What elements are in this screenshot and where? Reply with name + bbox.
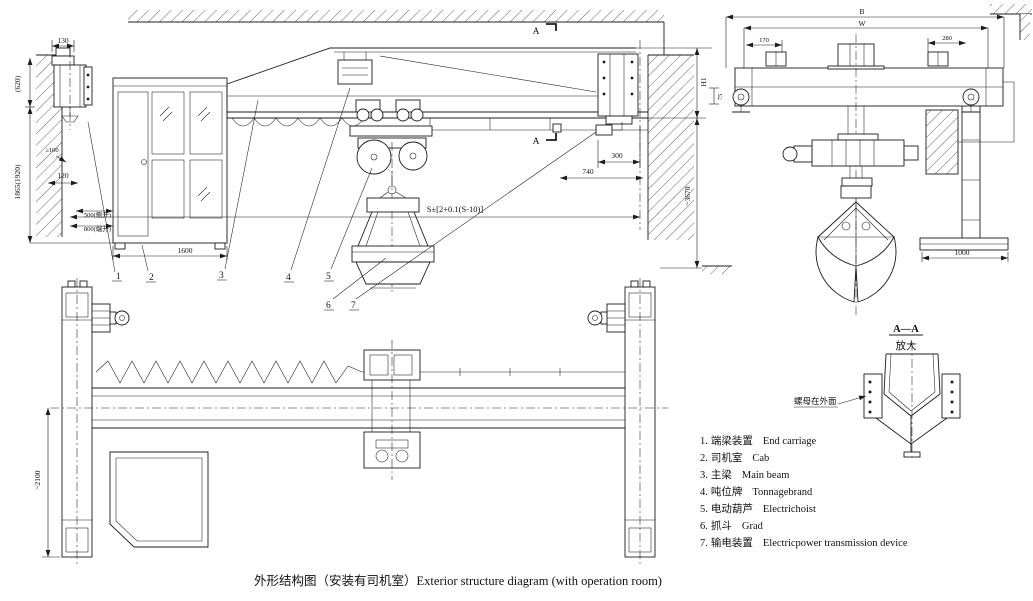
aa-detail-subtitle: 放大 [896,339,917,352]
legend: 1.端梁装置End carriage 2.司机室Cab 3.主梁Main bea… [700,434,908,549]
grab-elevation [352,192,434,288]
elevation-view: A A [13,10,724,311]
plan-travel-motor-left [92,304,129,332]
side-ceiling-corner-hatch [990,4,1032,40]
dim-2100: ~2100 [33,470,42,489]
legend-item-4: 4.吨位牌Tonnagebrand [700,485,813,498]
dim-1865: 1865(1920) [13,164,22,199]
legend-num: 5. [700,504,708,515]
legend-zh: 端梁装置 [711,434,753,447]
legend-en: Electricpower transmission device [763,538,908,549]
legend-num: 6. [700,521,708,532]
legend-en: Main beam [742,470,790,481]
plan-girder [50,388,668,428]
dim-75: 75 [717,94,724,101]
dim-280: 280 [942,35,952,42]
dim-1000: 1000 [955,248,970,257]
plan-festoon-wire [96,361,625,383]
legend-zh: 吨位牌 [711,485,743,498]
legend-item-1: 1.端梁装置End carriage [700,434,817,447]
dim-b: B [859,7,864,16]
legend-item-5: 5.电动葫芦Electrichoist [700,502,816,515]
dim-120: 120 [57,171,69,180]
dim-500-side-open: 500(侧开) [84,210,111,219]
aa-detail-note: 螺母在外面 [794,396,837,406]
legend-item-7: 7.输电装置Electricpower transmission device [700,536,908,549]
callout-5: 5 [326,272,331,282]
callout-2: 2 [149,273,154,283]
dim-min100: ≥100 [45,147,58,154]
crane-exterior-structure-drawing: A A [0,0,1033,601]
legend-en: Electrichoist [763,504,816,515]
side-cabinet-column: 1000 [920,82,1014,262]
legend-num: 1. [700,436,708,447]
legend-zh: 输电装置 [711,536,753,549]
legend-num: 2. [700,453,708,464]
legend-item-6: 6.抓斗Grad [700,519,764,532]
dim-w: W [858,19,866,28]
plan-cab-outline [110,452,208,547]
plan-left-end-carriage [62,278,92,564]
side-hoist [783,106,918,186]
dim-1600: 1600 [178,246,193,255]
aa-detail-title: A—A [893,324,919,335]
right-wall-hatch [648,55,694,240]
dim-740: 740 [582,167,594,176]
section-marker-a-top: A [533,24,556,37]
dim-130: 130 [57,36,69,45]
callout-4: 4 [286,273,291,283]
legend-item-2: 2.司机室Cab [700,451,769,464]
legend-zh: 司机室 [711,451,743,464]
festoon-cable [232,118,648,130]
plan-hoist-trolley [364,340,420,480]
main-girder [227,40,648,230]
tonnage-plate [338,52,372,84]
legend-en: Cab [752,453,769,464]
legend-zh: 主梁 [711,468,732,481]
callout-7: 7 [351,301,356,311]
legend-num: 7. [700,538,708,549]
dim-620: (620) [13,75,22,92]
side-view: B W 170 280 [702,4,1032,316]
legend-zh: 抓斗 [711,519,732,532]
section-a-label: A [533,137,540,147]
plan-dimension-2100: ~2100 [33,408,60,557]
dim-span-s: S±[2+0.1(S-10)] [427,204,484,214]
plan-right-end-carriage [625,278,655,564]
legend-item-3: 3.主梁Main beam [700,468,789,481]
legend-zh: 电动葫芦 [711,502,753,515]
section-a-label: A [533,27,540,37]
drawing-canvas: A A [0,0,1033,601]
plan-travel-motor-right [588,304,625,332]
callout-6: 6 [326,301,331,311]
aa-detail-view: A—A 放大 螺母在外面 [794,324,960,458]
callout-3: 3 [219,271,224,281]
legend-en: Tonnagebrand [752,487,813,498]
dim-3670: ~3670 [683,186,692,205]
legend-num: 3. [700,470,708,481]
section-marker-a-mid: A [533,133,556,147]
dim-170: 170 [759,37,769,44]
drawing-caption: 外形结构图（安装有司机室）Exterior structure diagram … [254,573,662,588]
legend-en: Grad [742,521,764,532]
aa-detail-drawing: 螺母在外面 [794,354,960,457]
legend-num: 4. [700,487,708,498]
callout-1: 1 [116,272,121,282]
dim-300: 300 [611,151,623,160]
plan-view: ~2100 [33,278,668,564]
dim-h1: H1 [699,77,708,86]
legend-en: End carriage [763,436,817,447]
